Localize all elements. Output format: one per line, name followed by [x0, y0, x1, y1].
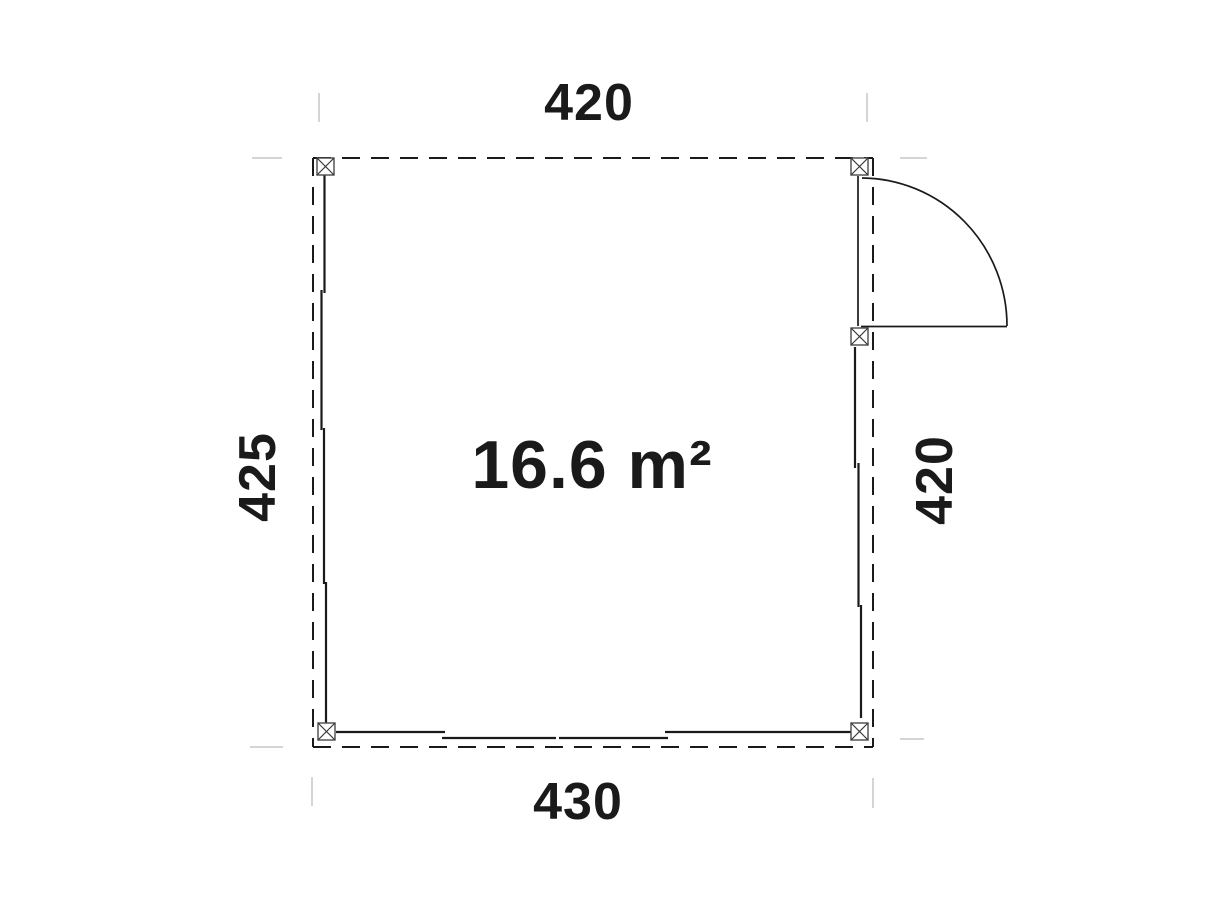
corner-post-bottom-left: [318, 723, 335, 740]
corner-post-top-right: [851, 158, 868, 175]
dimension-label-bottom: 430: [533, 776, 623, 828]
left-wall-lines: [322, 175, 327, 723]
door-swing-arc: [862, 178, 1007, 326]
dimension-label-top: 420: [544, 77, 634, 129]
floor-plan-canvas: 420 430 425 420 16.6 m²: [0, 0, 1214, 911]
right-wall-lines: [855, 347, 861, 718]
dimension-label-left: 425: [232, 432, 284, 522]
corner-post-bottom-right: [851, 723, 868, 740]
corner-post-top-left: [317, 158, 334, 175]
door-symbol: [858, 176, 1007, 327]
bottom-wall-lines: [336, 732, 852, 738]
dimension-label-right: 420: [909, 435, 961, 525]
door-hinge-post-right: [851, 328, 868, 345]
floor-area-label: 16.6 m²: [471, 431, 712, 499]
